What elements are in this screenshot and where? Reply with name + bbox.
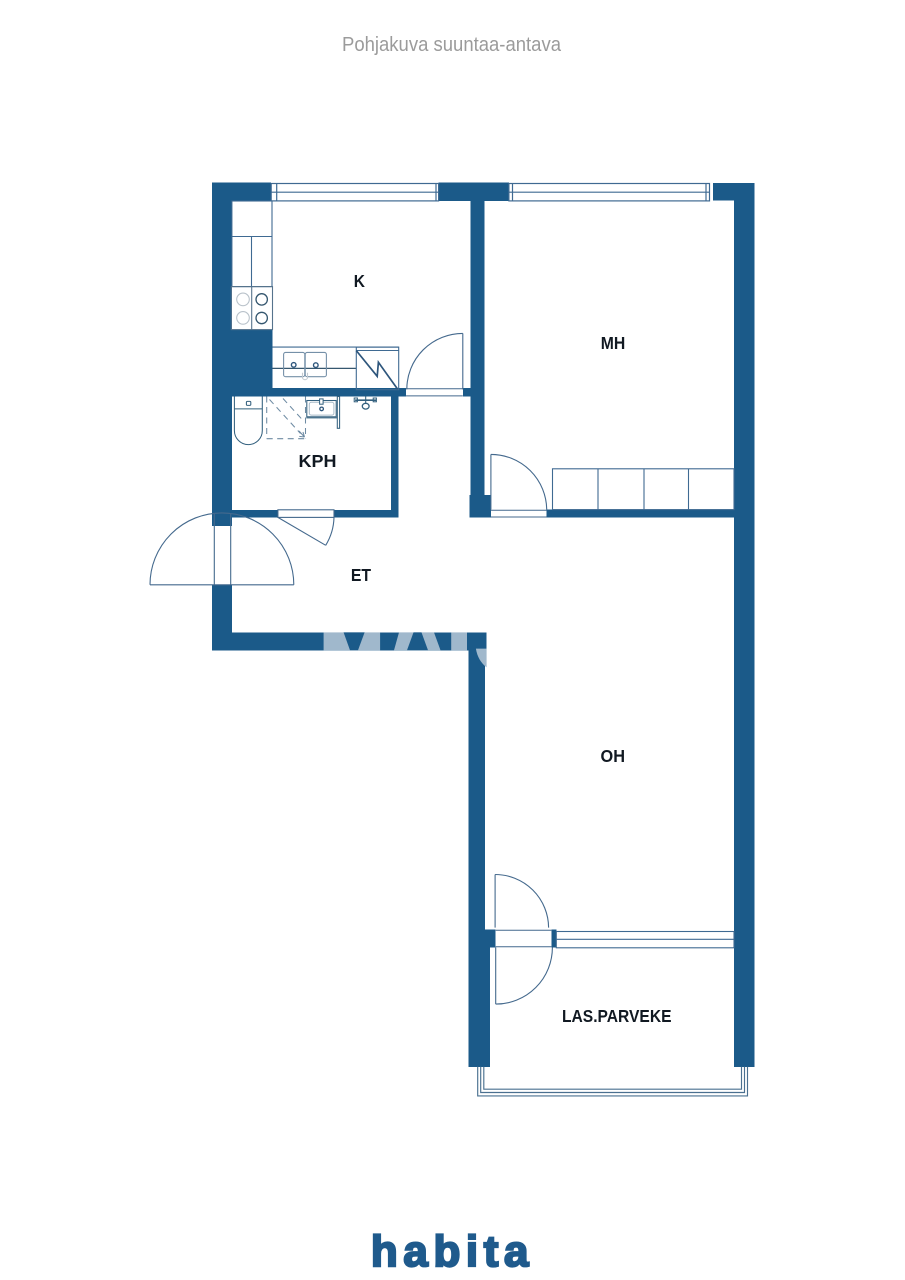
svg-text:OH: OH bbox=[601, 746, 626, 766]
svg-text:MH: MH bbox=[601, 333, 626, 353]
svg-text:K: K bbox=[354, 271, 366, 291]
svg-text:Pohjakuva suuntaa-antava: Pohjakuva suuntaa-antava bbox=[342, 33, 562, 56]
svg-text:LAS.PARVEKE: LAS.PARVEKE bbox=[562, 1006, 672, 1026]
svg-text:KPH: KPH bbox=[299, 451, 337, 471]
svg-text:ET: ET bbox=[351, 565, 371, 585]
svg-text:habita: habita bbox=[371, 1227, 534, 1276]
